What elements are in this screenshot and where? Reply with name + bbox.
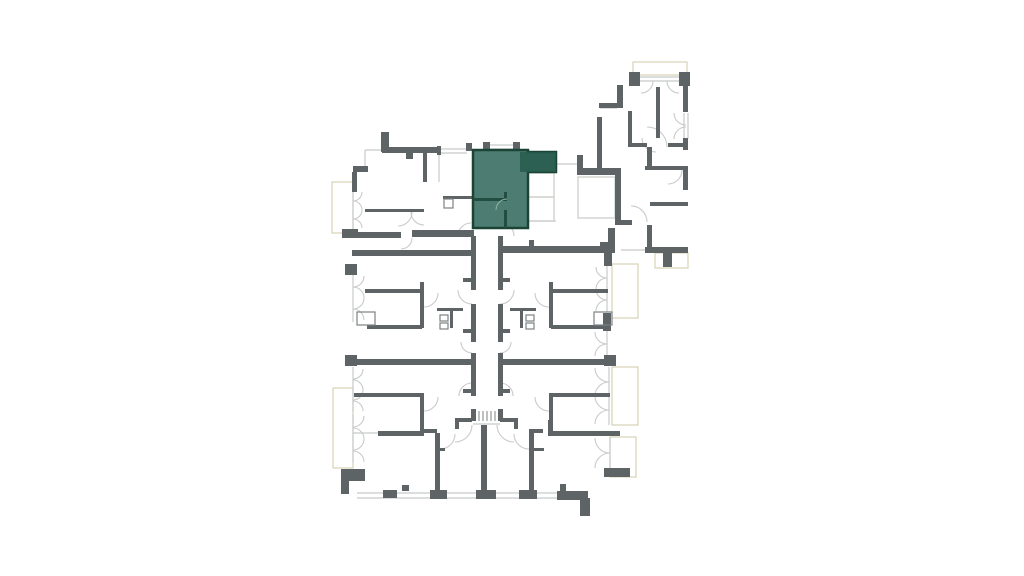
wall-segment (352, 172, 357, 192)
wall-segment (519, 490, 537, 499)
balcony-outline (612, 367, 638, 425)
door-swing-arc (595, 453, 610, 468)
wall-segment (683, 85, 688, 112)
closet-outline (578, 177, 615, 218)
door-swing-arc (596, 278, 607, 289)
door-swing-arc (353, 201, 362, 210)
wall-segment (604, 468, 630, 477)
wall-segment (437, 146, 441, 155)
wall-segment (406, 153, 413, 159)
wall-segment (510, 308, 536, 311)
wall-segment (608, 228, 615, 242)
wall-segment (656, 87, 660, 138)
wall-segment (420, 395, 424, 435)
door-swing-arc (595, 410, 609, 424)
wall-segment (514, 421, 518, 429)
wall-segment (466, 143, 472, 151)
wall-segment (683, 170, 688, 190)
door-swing-arc (461, 342, 472, 353)
wall-segment (647, 225, 652, 249)
door-swing-arc (353, 210, 362, 219)
door-swing-arc (596, 300, 607, 311)
door-swing-arc (595, 332, 607, 344)
door-swing-arc (353, 401, 363, 411)
wall-segment (367, 325, 422, 329)
door-swing-arc (353, 416, 364, 427)
fixture-outline (440, 323, 448, 329)
door-swing-arc (353, 369, 363, 379)
wall-segment (645, 166, 688, 170)
wall-segment (580, 498, 590, 516)
wall-segment (420, 293, 424, 328)
door-swing-arc (401, 238, 412, 249)
wall-segment (548, 431, 620, 436)
wall-segment (383, 490, 397, 498)
door-swing-arc (595, 438, 610, 453)
wall-segment (420, 282, 424, 290)
wall-segment (560, 484, 566, 492)
fixture-outline (444, 199, 453, 208)
wall-segment (450, 311, 453, 328)
wall-segment (615, 220, 632, 225)
wall-segment (628, 111, 632, 147)
wall-segment (529, 240, 534, 246)
wall-segment (345, 264, 357, 275)
highlighted-unit[interactable] (473, 150, 556, 228)
wall-segment (463, 329, 473, 333)
door-swing-arc (641, 81, 653, 93)
wall-segment (549, 289, 608, 293)
wall-segment (500, 389, 510, 393)
door-swing-arc (497, 425, 514, 442)
door-swing-arc (458, 290, 472, 304)
fixture-outline (526, 315, 534, 321)
wall-segment (500, 359, 612, 365)
wall-segment (663, 253, 672, 267)
door-swing-arc (595, 344, 607, 356)
wall-segment (529, 433, 534, 495)
closet-outline (528, 173, 554, 197)
wall-segment (481, 425, 487, 498)
door-swing-arc (353, 298, 364, 309)
door-swing-arc (424, 397, 438, 411)
wall-segment (629, 72, 640, 86)
wall-segment (498, 304, 503, 342)
door-swing-arc (667, 81, 679, 93)
door-swing-arc (398, 212, 412, 226)
fixture-outline (357, 312, 375, 325)
wall-segment (500, 329, 510, 333)
wall-segment (341, 481, 349, 494)
stair-steps-layer (475, 411, 499, 421)
door-swing-arc (595, 368, 609, 382)
door-swing-arc (500, 342, 511, 353)
wall-segment (645, 247, 688, 253)
wall-segment (342, 229, 358, 238)
wall-segment (437, 308, 463, 311)
wall-segment (357, 232, 401, 238)
wall-segment (597, 117, 602, 170)
wall-segment (500, 278, 510, 282)
floorplan-canvas (0, 0, 1024, 576)
wall-segment (600, 242, 615, 253)
floorplan-svg (0, 0, 1024, 576)
door-swing-arc (424, 293, 438, 307)
wall-segment (423, 150, 427, 182)
wall-segment (424, 429, 437, 433)
wall-segment (549, 282, 553, 290)
door-swing-arc (668, 170, 682, 184)
wall-segment (615, 175, 621, 225)
wall-segment (352, 359, 471, 365)
wall-segment (352, 250, 473, 256)
wall-segment (354, 393, 424, 397)
wall-segment (650, 202, 688, 206)
wall-segment (630, 143, 647, 147)
door-swing-arc (535, 397, 549, 411)
highlighted-unit-overlay (520, 152, 556, 172)
door-swing-arc (353, 309, 364, 320)
wall-segment (549, 293, 553, 328)
wall-segment (604, 355, 616, 366)
wall-segment (577, 155, 583, 169)
door-swing-arc (353, 276, 364, 287)
fixture-outline (440, 315, 448, 321)
wall-segment (463, 389, 473, 393)
fixture-outline (526, 323, 534, 329)
wall-segment (341, 469, 365, 481)
door-swing-arc (535, 293, 549, 307)
wall-segment (402, 485, 409, 491)
wall-segment (455, 421, 459, 429)
wall-segment (549, 393, 610, 397)
balcony-outlines-layer (332, 62, 688, 477)
wall-segment (549, 395, 553, 435)
door-swing-arc (353, 451, 364, 462)
balcony-outline (333, 388, 353, 468)
door-swing-arc (353, 219, 362, 228)
door-swing-arc (514, 434, 529, 449)
wall-segment (679, 72, 690, 86)
door-swing-arc (596, 267, 607, 278)
door-swing-arc (440, 434, 455, 449)
door-swing-arc (353, 287, 364, 298)
door-swing-arc (353, 439, 364, 450)
wall-segment (668, 143, 688, 147)
door-swing-arc (353, 380, 363, 390)
balcony-outline (633, 62, 687, 75)
door-swing-arcs-layer (353, 81, 686, 468)
door-swing-arc (500, 290, 514, 304)
wall-segment (551, 325, 606, 329)
wall-segment (604, 253, 612, 266)
wall-segment (412, 230, 474, 237)
wall-segment (463, 278, 473, 282)
closet-outline (528, 197, 554, 221)
wall-segment (529, 429, 543, 433)
wall-segment (382, 147, 438, 153)
wall-segment (435, 433, 440, 495)
wall-segment (603, 313, 611, 331)
wall-segment (471, 304, 476, 342)
wall-segment (435, 448, 445, 451)
wall-segment (599, 103, 618, 108)
wall-segment (365, 209, 424, 212)
balcony-outline (612, 264, 638, 318)
door-swing-arc (595, 396, 609, 410)
wall-segment (647, 147, 652, 167)
wall-segment (520, 311, 523, 328)
wall-segment (353, 166, 368, 172)
balcony-outline (332, 182, 353, 233)
wall-segment (365, 289, 424, 293)
wall-segment (534, 448, 544, 451)
wall-segment (378, 431, 424, 436)
door-swing-arc (631, 206, 647, 222)
closet-outlines-layer (528, 173, 615, 221)
unit-wall-segment (504, 210, 507, 228)
wall-segment (500, 246, 601, 253)
door-swing-arc (411, 212, 424, 225)
door-swing-arc (353, 192, 362, 201)
